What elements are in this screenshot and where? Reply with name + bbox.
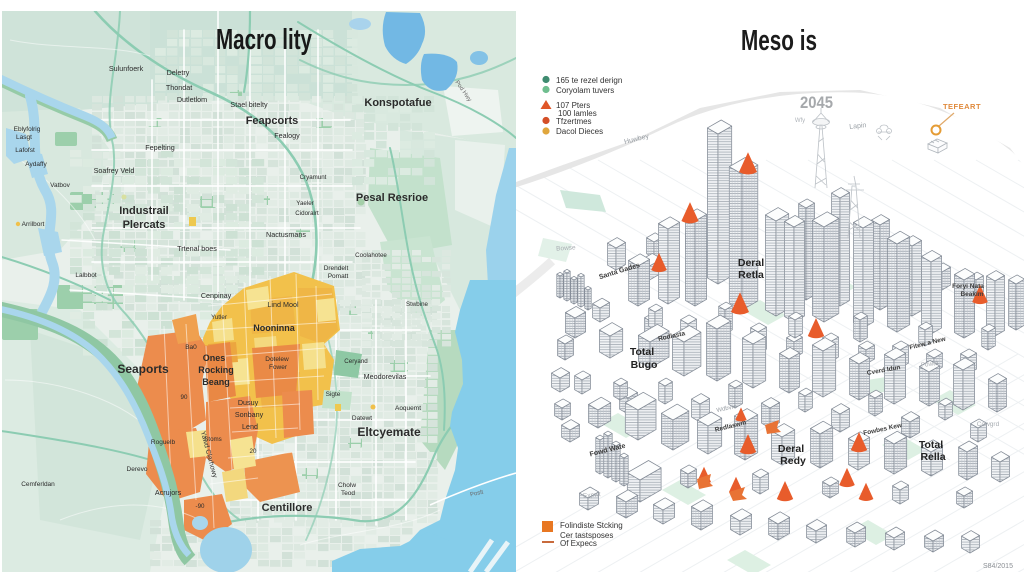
svg-text:Wfy: Wfy — [795, 118, 805, 124]
svg-text:Total: Total — [919, 439, 943, 451]
svg-text:Centillore: Centillore — [262, 502, 313, 514]
svg-text:Thondat: Thondat — [166, 83, 192, 92]
svg-text:Foryi Nata: Foryi Nata — [952, 283, 984, 290]
svg-text:Of Expecs: Of Expecs — [560, 539, 597, 548]
svg-text:TEFEART: TEFEART — [943, 102, 981, 111]
svg-text:S84/2015: S84/2015 — [983, 563, 1013, 570]
svg-text:165 te rezel derign: 165 te rezel derign — [556, 76, 622, 85]
svg-text:Soafrey Veld: Soafrey Veld — [94, 166, 135, 175]
svg-text:Plercats: Plercats — [123, 219, 166, 231]
svg-text:Rocking: Rocking — [198, 365, 234, 375]
svg-text:Cryamunt: Cryamunt — [300, 174, 327, 181]
svg-text:Macro lity: Macro lity — [216, 24, 312, 56]
svg-text:Lasgt: Lasgt — [16, 134, 32, 141]
svg-text:Teod: Teod — [341, 490, 355, 497]
svg-text:Lalbbot: Lalbbot — [75, 272, 97, 279]
svg-text:Tfzertmes: Tfzertmes — [556, 117, 592, 126]
svg-text:Beang: Beang — [202, 377, 230, 387]
svg-text:Yaeler: Yaeler — [296, 200, 313, 207]
svg-text:Rella: Rella — [920, 451, 945, 463]
svg-text:20: 20 — [250, 448, 257, 455]
svg-text:Dacol Dieces: Dacol Dieces — [556, 127, 603, 136]
svg-text:Ba0: Ba0 — [185, 344, 197, 351]
svg-text:Stwbine: Stwbine — [406, 301, 429, 308]
svg-text:Dotelew: Dotelew — [265, 356, 289, 363]
svg-text:Cidoralrt: Cidoralrt — [295, 210, 319, 217]
svg-text:Coryolam tuvers: Coryolam tuvers — [556, 86, 614, 95]
svg-text:Deral: Deral — [778, 443, 804, 455]
svg-text:Bowse: Bowse — [556, 244, 576, 252]
svg-text:Konspotafue: Konspotafue — [364, 97, 431, 109]
svg-text:Industrail: Industrail — [119, 205, 169, 217]
svg-text:Pesal Resrioe: Pesal Resrioe — [356, 192, 428, 204]
svg-text:Datewt: Datewt — [352, 415, 372, 422]
svg-text:Nooninna: Nooninna — [253, 323, 295, 333]
svg-text:Eblyfolrig: Eblyfolrig — [14, 126, 41, 133]
svg-text:Deletry: Deletry — [167, 68, 190, 77]
svg-text:Fepelting: Fepelting — [145, 143, 175, 152]
svg-text:Derevo: Derevo — [127, 466, 148, 473]
svg-text:90: 90 — [181, 394, 188, 401]
svg-text:Aoquemt: Aoquemt — [395, 405, 421, 412]
svg-text:Yutler: Yutler — [211, 314, 227, 321]
svg-text:Lafofst: Lafofst — [15, 147, 35, 154]
svg-text:Trtenal boes: Trtenal boes — [177, 244, 217, 253]
svg-text:Folindiste Stcking: Folindiste Stcking — [560, 521, 623, 530]
svg-text:Pomatt: Pomatt — [328, 273, 349, 280]
svg-text:Seaports: Seaports — [117, 362, 169, 376]
svg-text:Deral: Deral — [738, 257, 764, 269]
svg-text:Cholw: Cholw — [338, 482, 356, 489]
svg-text:Fower: Fower — [269, 364, 288, 371]
svg-text:Cemferldan: Cemferldan — [21, 481, 55, 488]
svg-text:Lind Mool: Lind Mool — [267, 300, 299, 309]
svg-text:Nactusmans: Nactusmans — [266, 230, 306, 239]
svg-text:Sulunfoerk: Sulunfoerk — [109, 64, 144, 73]
svg-text:Arrilbort: Arrilbort — [22, 221, 45, 228]
svg-text:Bugo: Bugo — [631, 359, 658, 371]
svg-text:Lend: Lend — [242, 422, 258, 431]
svg-text:Meso is: Meso is — [741, 25, 817, 57]
svg-text:Cowgrd: Cowgrd — [977, 421, 1000, 428]
svg-text:2045: 2045 — [800, 93, 833, 112]
svg-text:Total: Total — [630, 346, 654, 358]
svg-text:Vatbov: Vatbov — [50, 182, 71, 189]
svg-text:Acrujors: Acrujors — [155, 488, 182, 497]
svg-text:Roguelb: Roguelb — [151, 439, 176, 446]
svg-text:Dutletlom: Dutletlom — [177, 95, 207, 104]
svg-text:Fealogy: Fealogy — [274, 131, 300, 140]
svg-text:Sonbany: Sonbany — [235, 410, 264, 419]
svg-text:Aydaffy: Aydaffy — [25, 161, 47, 168]
svg-text:Dusuy: Dusuy — [238, 398, 259, 407]
svg-text:Feapcorts: Feapcorts — [246, 115, 299, 127]
svg-text:Eltcyemate: Eltcyemate — [357, 425, 421, 439]
svg-text:Ones: Ones — [203, 353, 226, 363]
svg-text:Ceryand: Ceryand — [344, 358, 368, 365]
svg-text:Sigte: Sigte — [326, 391, 341, 398]
svg-text:Drendelt: Drendelt — [324, 265, 349, 272]
svg-text:-90: -90 — [196, 503, 206, 510]
svg-text:Beakim: Beakim — [960, 291, 983, 298]
svg-text:Redy: Redy — [780, 455, 806, 467]
svg-text:Retla: Retla — [738, 269, 764, 281]
svg-text:Meodorevilas: Meodorevilas — [364, 372, 407, 381]
svg-text:Stael bitelty: Stael bitelty — [230, 100, 268, 109]
svg-text:Coolahotee: Coolahotee — [355, 252, 387, 259]
svg-text:Cenpinay: Cenpinay — [201, 291, 232, 300]
